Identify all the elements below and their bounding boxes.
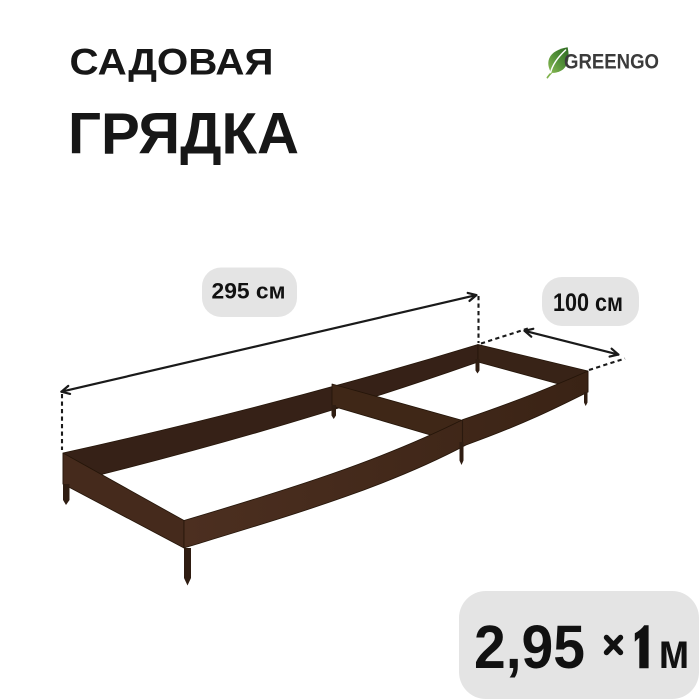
svg-text:САДОВАЯ: САДОВАЯ	[70, 42, 274, 83]
svg-text:ГРЯДКА: ГРЯДКА	[68, 102, 299, 167]
svg-text:100 см: 100 см	[553, 289, 623, 317]
svg-text:GREENGO: GREENGO	[564, 51, 659, 74]
svg-text:м: м	[659, 623, 690, 679]
svg-text:2,95: 2,95	[474, 613, 585, 681]
svg-text:295 см: 295 см	[212, 279, 286, 304]
